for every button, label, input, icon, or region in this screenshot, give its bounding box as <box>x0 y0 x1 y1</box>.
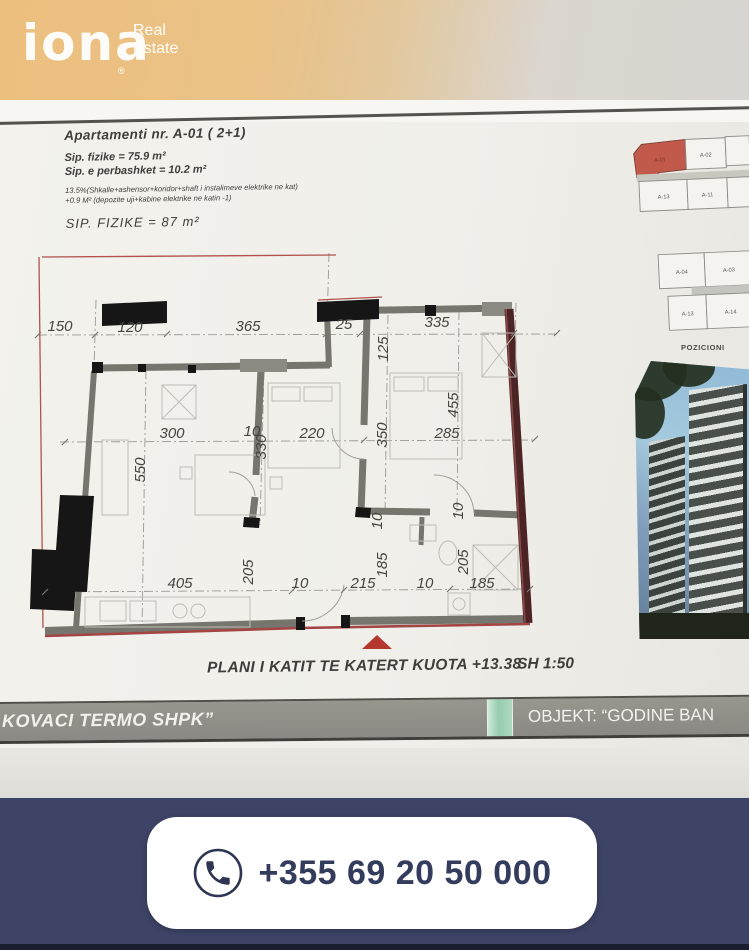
dimension-label: 455 <box>445 392 462 418</box>
key-plan-unit-label: A-14 <box>725 309 737 316</box>
company-name: KOVACI TERMO SHPK” <box>2 709 214 732</box>
phone-button[interactable]: +355 69 20 50 000 <box>147 817 597 929</box>
floor-plan: 150 120 365 25 335 125 455 350 330 550 2… <box>30 245 575 665</box>
dimension-label: 550 <box>132 457 149 483</box>
dimension-label: 120 <box>117 319 143 336</box>
dimension-label: 10 <box>244 423 261 440</box>
dimension-label: 205 <box>240 559 257 586</box>
paper-bottom-shade <box>0 748 749 798</box>
dimension-label: 350 <box>374 422 391 448</box>
building-photo <box>635 361 749 639</box>
plan-caption: PLANI I KATIT TE KATERT KUOTA +13.38 <box>207 656 522 678</box>
key-plan-caption: POZICIONI <box>681 343 725 352</box>
brand-tagline-line2: Estate <box>133 40 178 58</box>
key-plan-unit-label: A-11 <box>702 192 714 198</box>
key-plan-unit <box>727 177 749 208</box>
dimension-label: 150 <box>47 318 73 335</box>
key-plan-unit-label: A-04 <box>676 269 688 276</box>
key-plan-unit-label: A-13 <box>682 311 694 318</box>
title-bar-divider <box>487 699 513 736</box>
dimension-label: 125 <box>375 336 392 362</box>
dimension-label: 335 <box>424 314 450 331</box>
drawing-title-bar: KOVACI TERMO SHPK” OBJEKT: “GODINE BAN <box>0 695 749 744</box>
dimension-labels: 150 120 365 25 335 125 455 350 330 550 2… <box>47 314 495 592</box>
key-plan: A-01 A-02 A-13 A-11 A-04 A-03 A-13 A-14 <box>627 133 749 370</box>
key-plan-unit <box>725 136 749 166</box>
apartment-total-area: SIP. FIZIKE = 87 m² <box>66 210 396 231</box>
key-plan-unit-label: A-02 <box>700 152 712 159</box>
key-plan-unit-label: A-03 <box>723 267 735 274</box>
object-name: OBJEKT: “GODINE BAN <box>528 705 714 727</box>
image-bottom-edge <box>0 944 749 950</box>
dimension-label: 10 <box>417 575 434 592</box>
dimension-label: 285 <box>433 425 460 442</box>
phone-icon <box>192 847 244 899</box>
brand-strip: iona ® Real Estate <box>0 0 749 100</box>
registered-mark-icon: ® <box>118 66 125 76</box>
dimension-label: 10 <box>450 502 467 519</box>
brand-tagline-line1: Real <box>133 22 178 40</box>
building-photo-ground <box>635 613 749 639</box>
dimension-label: 205 <box>455 549 472 576</box>
dimension-label: 10 <box>369 512 386 529</box>
apartment-info-block: Apartamenti nr. A-01 ( 2+1) Sip. fizike … <box>64 122 396 231</box>
dimension-label: 405 <box>167 575 193 592</box>
key-plan-unit-label: A-13 <box>658 194 670 201</box>
building-tower-back <box>649 436 685 639</box>
dimension-label: 185 <box>374 552 391 578</box>
brand-tagline: Real Estate <box>133 22 178 59</box>
dimension-label: 185 <box>469 575 495 592</box>
dimension-label: 300 <box>159 425 185 442</box>
key-plan-unit-label: A-01 <box>654 157 666 164</box>
plan-scale: SH 1:50 <box>517 655 574 674</box>
entry-marker <box>362 635 392 649</box>
dimension-label: 220 <box>298 425 325 442</box>
flyer: { "brand": { "logo": "iona", "reg": "®",… <box>0 0 749 950</box>
apartment-title: Apartamenti nr. A-01 ( 2+1) <box>64 122 394 143</box>
dimension-label: 25 <box>335 316 353 333</box>
brand-logo: iona <box>22 18 151 68</box>
dimension-label: 10 <box>292 575 309 592</box>
dimension-label: 365 <box>235 318 261 335</box>
building-tower-front <box>689 384 747 639</box>
phone-number: +355 69 20 50 000 <box>258 854 551 893</box>
plan-sheet-photo: Apartamenti nr. A-01 ( 2+1) Sip. fizike … <box>0 100 749 798</box>
contact-footer: +355 69 20 50 000 <box>0 798 749 950</box>
dimension-label: 215 <box>349 575 376 592</box>
